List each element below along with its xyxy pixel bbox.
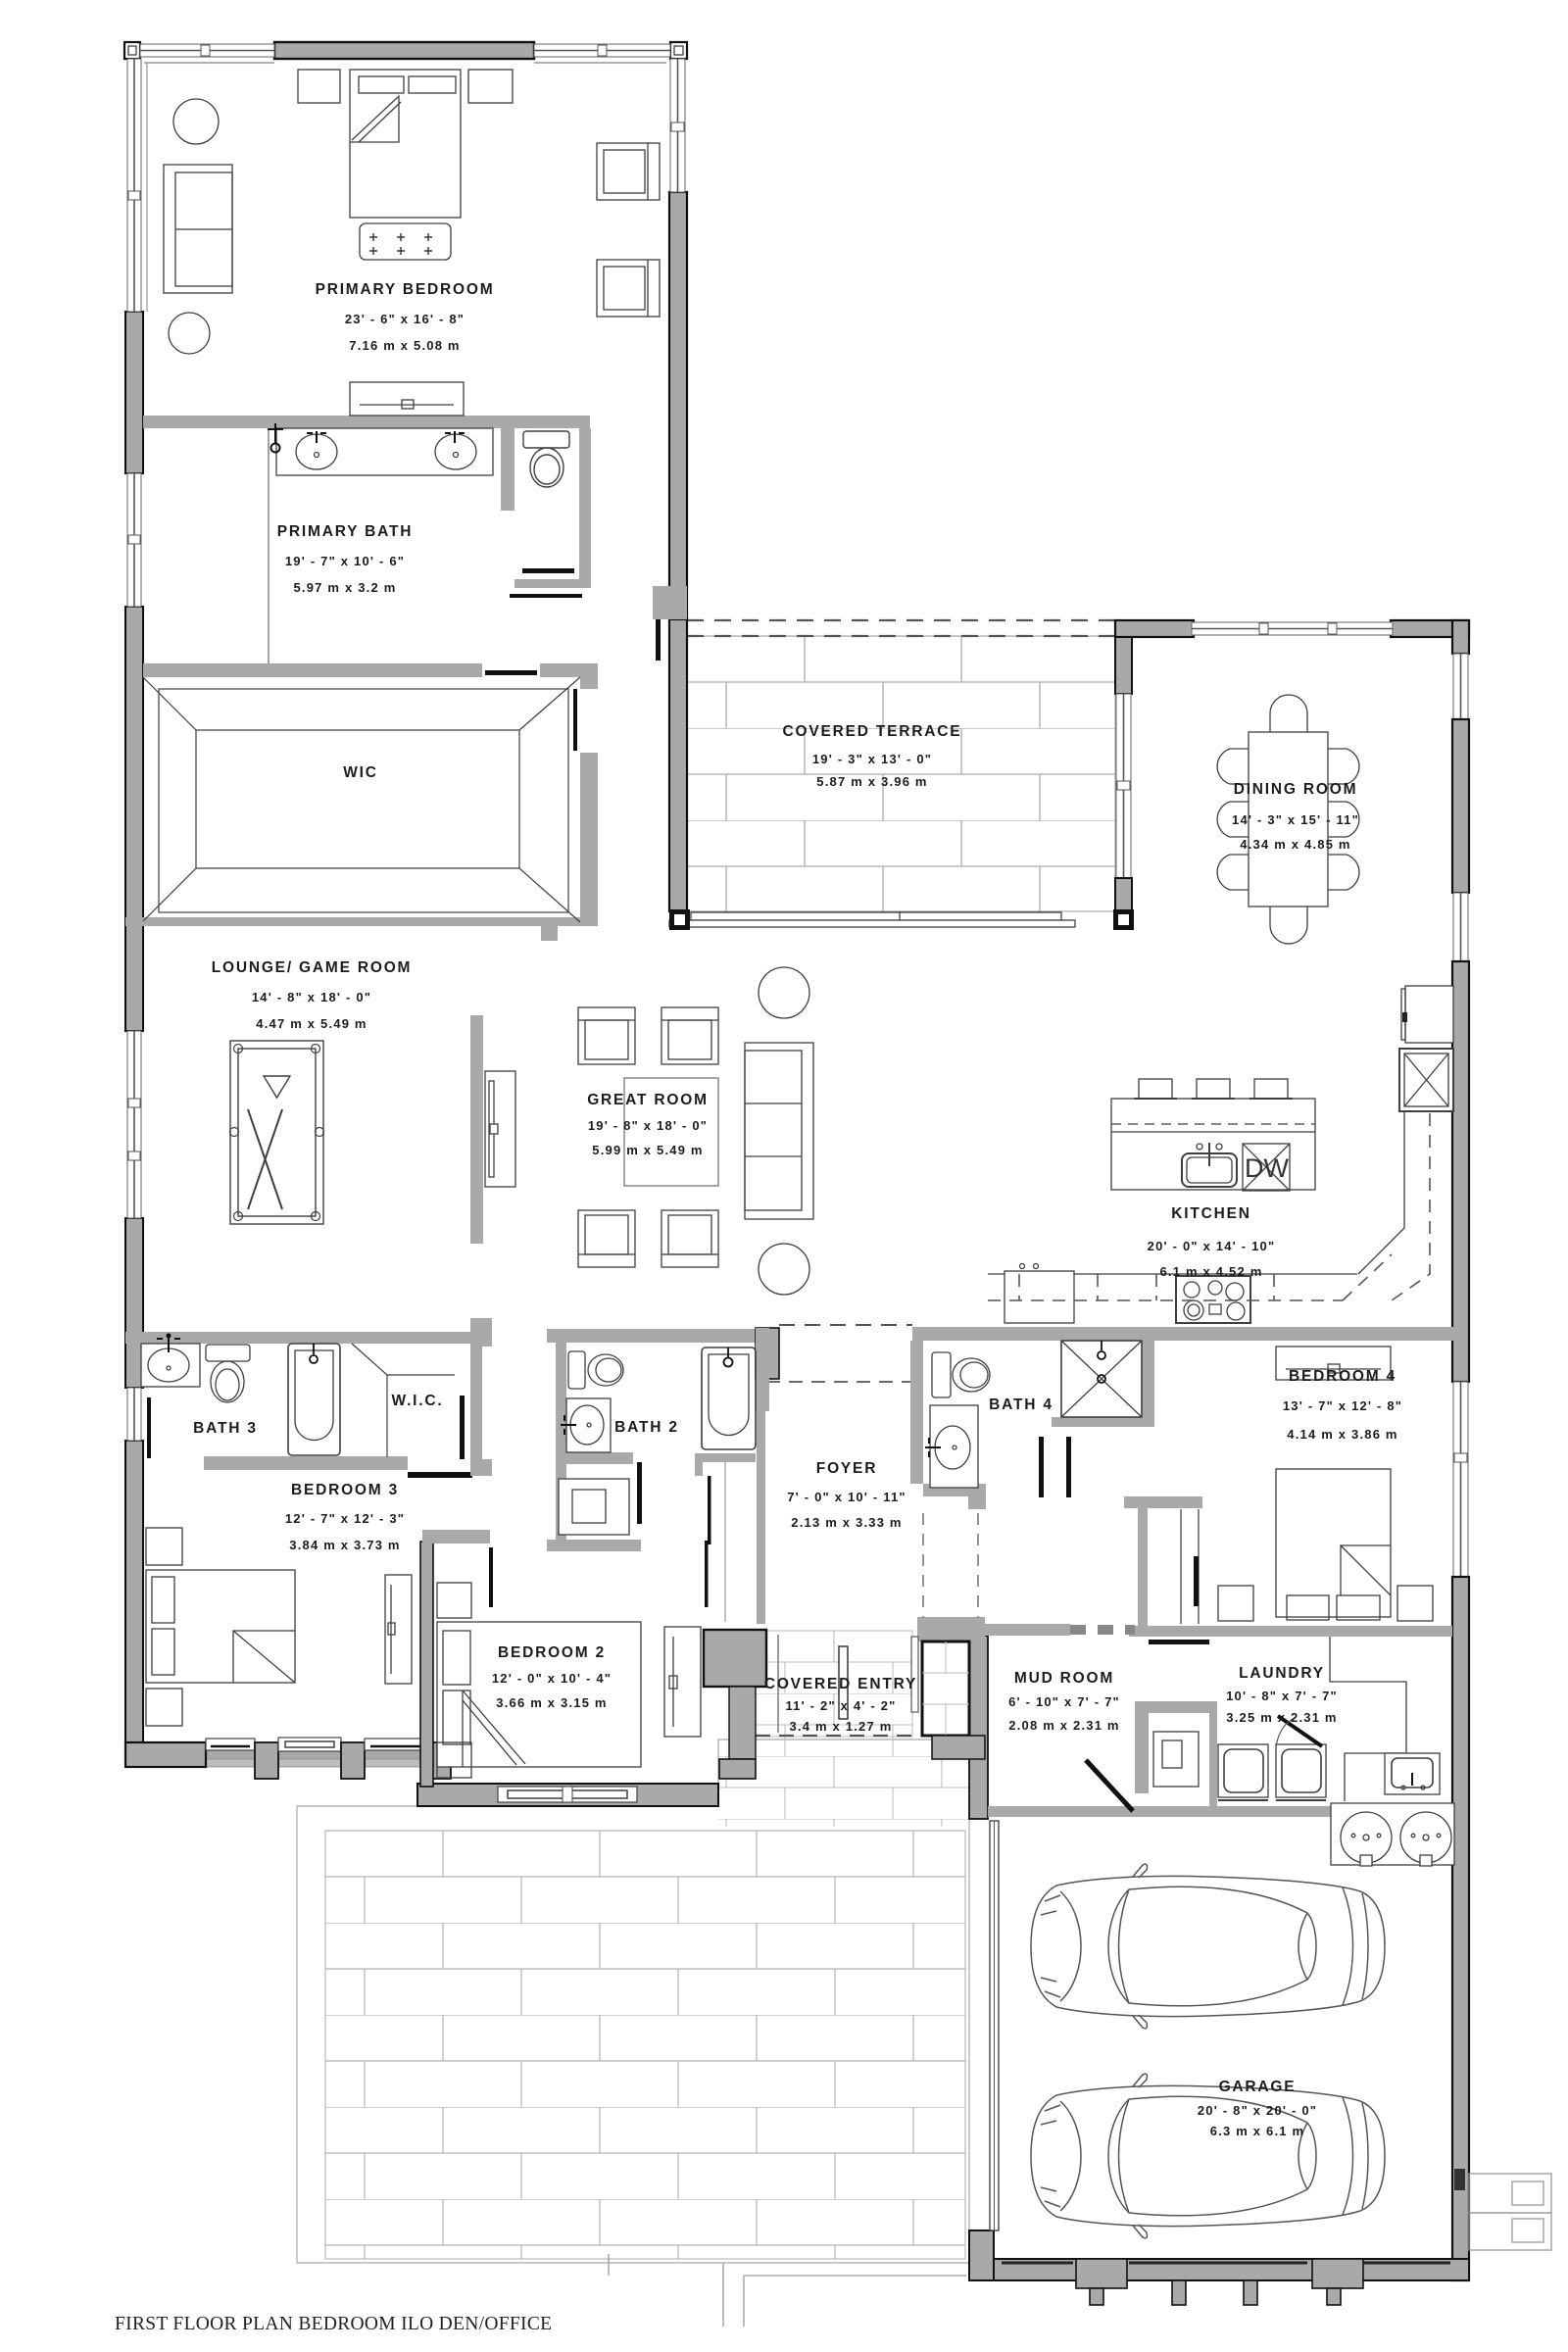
- svg-text:20' - 8" x 20' - 0": 20' - 8" x 20' - 0": [1198, 2103, 1317, 2118]
- svg-text:5.99 m x 5.49 m: 5.99 m x 5.49 m: [592, 1143, 703, 1157]
- svg-text:23' - 6" x 16' - 8": 23' - 6" x 16' - 8": [345, 312, 465, 326]
- svg-text:19' - 3" x 13' - 0": 19' - 3" x 13' - 0": [812, 752, 932, 766]
- svg-text:GARAGE: GARAGE: [1219, 2079, 1297, 2095]
- svg-text:2.08 m x 2.31 m: 2.08 m x 2.31 m: [1008, 1718, 1119, 1733]
- svg-text:6.3 m x 6.1 m: 6.3 m x 6.1 m: [1210, 2124, 1305, 2138]
- svg-text:19' - 8" x 18' - 0": 19' - 8" x 18' - 0": [588, 1118, 708, 1133]
- svg-text:10' - 8" x 7' - 7": 10' - 8" x 7' - 7": [1226, 1689, 1338, 1703]
- svg-text:7.16 m x 5.08 m: 7.16 m x 5.08 m: [349, 338, 460, 353]
- svg-text:4.47 m x 5.49 m: 4.47 m x 5.49 m: [256, 1016, 367, 1031]
- svg-text:BEDROOM 2: BEDROOM 2: [498, 1644, 606, 1661]
- svg-text:BATH 4: BATH 4: [989, 1396, 1053, 1413]
- svg-text:14' - 8" x 18' - 0": 14' - 8" x 18' - 0": [252, 990, 371, 1004]
- svg-text:BEDROOM 4: BEDROOM 4: [1289, 1368, 1396, 1385]
- svg-text:7' - 0" x 10' - 11": 7' - 0" x 10' - 11": [787, 1490, 906, 1504]
- svg-text:11' - 2" x 4' - 2": 11' - 2" x 4' - 2": [785, 1698, 896, 1713]
- svg-text:3.4 m x 1.27 m: 3.4 m x 1.27 m: [790, 1719, 893, 1734]
- svg-text:12' - 7" x 12' - 3": 12' - 7" x 12' - 3": [285, 1511, 405, 1526]
- svg-text:PRIMARY BEDROOM: PRIMARY BEDROOM: [316, 281, 495, 298]
- svg-text:LAUNDRY: LAUNDRY: [1239, 1665, 1325, 1682]
- svg-text:13' - 7" x 12' - 8": 13' - 7" x 12' - 8": [1283, 1398, 1402, 1413]
- svg-text:5.97 m x 3.2 m: 5.97 m x 3.2 m: [294, 580, 397, 595]
- svg-text:BEDROOM 3: BEDROOM 3: [291, 1482, 399, 1498]
- svg-text:12' - 0" x 10' - 4": 12' - 0" x 10' - 4": [492, 1671, 612, 1686]
- svg-text:WIC: WIC: [343, 764, 378, 781]
- svg-text:BATH 3: BATH 3: [193, 1420, 258, 1437]
- svg-text:DINING ROOM: DINING ROOM: [1234, 781, 1358, 798]
- svg-text:3.84 m x 3.73 m: 3.84 m x 3.73 m: [289, 1538, 400, 1552]
- svg-text:COVERED ENTRY: COVERED ENTRY: [764, 1676, 917, 1692]
- svg-text:COVERED TERRACE: COVERED TERRACE: [783, 723, 962, 740]
- svg-text:5.87 m x 3.96 m: 5.87 m x 3.96 m: [816, 774, 927, 789]
- svg-text:4.14 m x 3.86 m: 4.14 m x 3.86 m: [1287, 1427, 1397, 1442]
- svg-text:3.25 m x 2.31 m: 3.25 m x 2.31 m: [1226, 1710, 1337, 1725]
- svg-text:4.34 m x 4.85 m: 4.34 m x 4.85 m: [1240, 837, 1350, 852]
- svg-text:14' - 3" x 15' - 11": 14' - 3" x 15' - 11": [1232, 812, 1359, 827]
- svg-text:2.13 m x 3.33 m: 2.13 m x 3.33 m: [791, 1515, 902, 1530]
- svg-text:FIRST FLOOR PLAN BEDROOM ILO D: FIRST FLOOR PLAN BEDROOM ILO DEN/OFFICE: [115, 2314, 552, 2334]
- svg-text:MUD ROOM: MUD ROOM: [1014, 1670, 1114, 1687]
- svg-text:FOYER: FOYER: [816, 1460, 877, 1477]
- svg-text:20' - 0" x 14' - 10": 20' - 0" x 14' - 10": [1148, 1239, 1276, 1253]
- svg-text:6' - 10" x 7' - 7": 6' - 10" x 7' - 7": [1008, 1694, 1120, 1709]
- svg-text:6.1 m x 4.52 m: 6.1 m x 4.52 m: [1160, 1264, 1263, 1279]
- svg-text:W.I.C.: W.I.C.: [392, 1393, 444, 1409]
- svg-text:PRIMARY BATH: PRIMARY BATH: [277, 523, 413, 540]
- svg-text:LOUNGE/ GAME ROOM: LOUNGE/ GAME ROOM: [212, 959, 413, 976]
- svg-text:19' - 7" x 10' - 6": 19' - 7" x 10' - 6": [285, 554, 405, 568]
- svg-text:KITCHEN: KITCHEN: [1171, 1205, 1251, 1222]
- svg-text:GREAT ROOM: GREAT ROOM: [587, 1092, 709, 1108]
- svg-text:DW: DW: [1245, 1153, 1289, 1183]
- svg-text:3.66 m x 3.15 m: 3.66 m x 3.15 m: [496, 1695, 607, 1710]
- svg-text:BATH 2: BATH 2: [614, 1419, 679, 1436]
